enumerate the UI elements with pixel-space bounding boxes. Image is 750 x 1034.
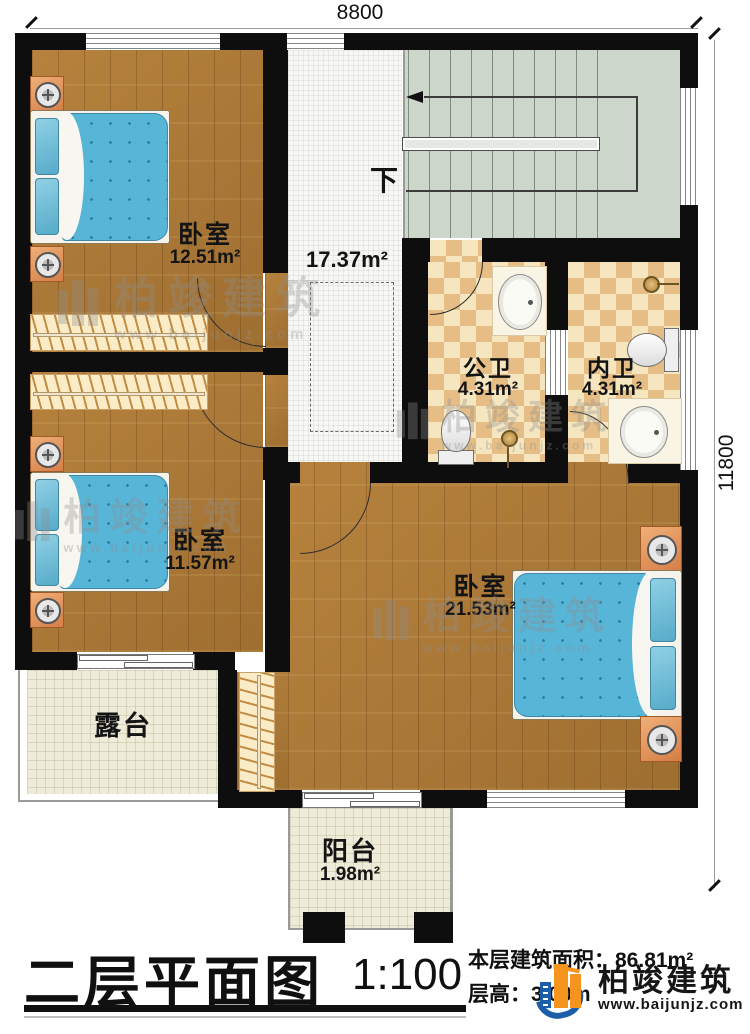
- sink-icon: [498, 274, 542, 330]
- window: [487, 792, 625, 808]
- room-label-inner-bath: 内卫 4.31m²: [562, 356, 662, 400]
- brand-url: www.baijunjz.com: [598, 996, 743, 1013]
- nightstand: [30, 436, 64, 472]
- wall-segment: [263, 447, 288, 480]
- toilet-icon: [441, 410, 471, 452]
- wardrobe: [239, 672, 275, 792]
- threshold-public-bath: [430, 240, 482, 262]
- dimension-top-label: 8800: [305, 1, 415, 25]
- dimension-tick: [708, 27, 721, 40]
- wall-segment: [482, 238, 680, 262]
- sink-icon: [620, 406, 668, 458]
- nightstand: [30, 246, 64, 282]
- pillow: [35, 118, 59, 175]
- wall-segment: [625, 790, 698, 808]
- window: [680, 88, 698, 205]
- sliding-door-terrace: [77, 654, 195, 669]
- wall-segment: [680, 205, 698, 330]
- stair-down-label: 下: [362, 166, 406, 195]
- room-label-hall: 17.37m²: [292, 248, 402, 271]
- terrace-railing: [18, 670, 20, 802]
- room-label-bedroom-mid: 卧室 11.57m²: [140, 528, 260, 574]
- nightstand: [640, 526, 682, 572]
- wall-segment: [428, 462, 568, 483]
- stair-guide-line: [406, 190, 638, 192]
- wall-segment: [15, 652, 77, 670]
- wall-segment: [370, 462, 402, 483]
- window: [680, 330, 698, 470]
- dimension-right-label: 11800: [715, 408, 739, 518]
- title-underline-thin: [24, 1016, 466, 1018]
- hall-dashed-outline: [310, 282, 394, 432]
- stair-direction-arrow: [406, 91, 423, 103]
- balcony-pillar: [414, 912, 453, 943]
- shower-knob-icon: [501, 430, 518, 447]
- wall-segment: [628, 462, 680, 483]
- title-underline: [24, 1005, 466, 1012]
- dimension-top-line: [30, 28, 698, 29]
- wall-segment: [402, 253, 428, 483]
- pillow: [35, 534, 59, 586]
- wardrobe: [30, 374, 208, 410]
- window: [287, 33, 344, 50]
- wall-segment: [263, 50, 288, 273]
- dimension-tick: [690, 16, 703, 29]
- balcony-railing: [288, 808, 290, 930]
- threshold-bedroom-top: [265, 273, 288, 348]
- wall-segment: [218, 670, 237, 808]
- room-label-bedroom-top: 卧室 12.51m²: [145, 222, 265, 268]
- wall-segment: [680, 33, 698, 88]
- room-label-terrace: 露台: [58, 712, 188, 740]
- wall-segment: [237, 790, 302, 808]
- nightstand: [30, 592, 64, 628]
- nightstand: [640, 716, 682, 762]
- brand-logo: 柏竣建筑 www.baijunjz.com: [536, 956, 743, 1022]
- wall-segment: [420, 790, 487, 808]
- pillow: [35, 178, 59, 235]
- terrace-railing: [18, 800, 220, 802]
- stair-handrail: [402, 137, 600, 151]
- room-label-public-bath: 公卫 4.31m²: [438, 356, 538, 400]
- pillow: [650, 578, 676, 642]
- wall-segment: [265, 480, 290, 672]
- room-label-balcony: 阳台 1.98m²: [295, 838, 405, 885]
- stair-guide-line: [636, 96, 638, 192]
- wall-segment: [193, 652, 235, 670]
- stair-guide-line: [424, 96, 637, 98]
- threshold-bedroom-mid: [265, 375, 288, 447]
- wall-segment: [220, 33, 287, 50]
- wall-segment: [545, 262, 568, 330]
- sheet-scale: 1:100: [352, 950, 462, 1000]
- wall-segment: [263, 348, 288, 375]
- toilet-tank: [438, 450, 474, 465]
- floorplan-page: 8800 11800 下: [0, 0, 750, 1034]
- dimension-tick: [25, 16, 38, 29]
- wall-segment: [344, 33, 694, 50]
- stair-treads-lower: [408, 150, 598, 238]
- pillow: [650, 646, 676, 710]
- sliding-door-balcony: [302, 792, 422, 808]
- room-label-bedroom-master: 卧室 21.53m²: [418, 574, 543, 620]
- wall-segment: [545, 395, 568, 462]
- wall-segment: [15, 352, 265, 372]
- nightstand: [30, 76, 64, 112]
- pillow: [35, 479, 59, 531]
- shower-stem: [657, 283, 679, 285]
- wall-segment: [680, 470, 698, 808]
- stair-treads-upper: [408, 50, 598, 138]
- window: [86, 33, 220, 50]
- brand-logo-icon: [536, 956, 594, 1022]
- wardrobe: [30, 314, 208, 351]
- shower-stem: [507, 446, 509, 468]
- brand-name: 柏竣建筑: [598, 965, 743, 996]
